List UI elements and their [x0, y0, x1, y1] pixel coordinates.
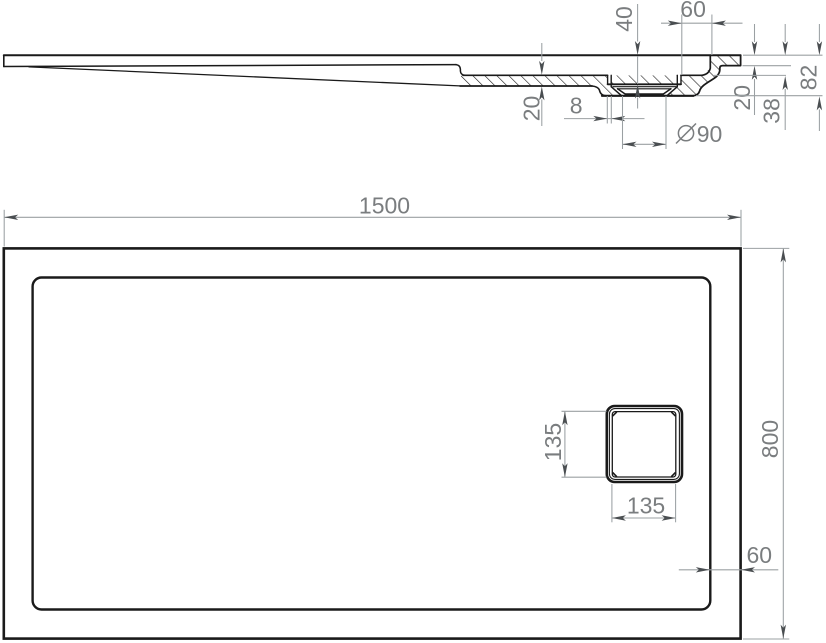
svg-text:38: 38 — [759, 98, 785, 124]
svg-text:800: 800 — [757, 420, 783, 458]
svg-text:90: 90 — [697, 121, 723, 147]
svg-text:82: 82 — [796, 65, 822, 91]
svg-text:135: 135 — [540, 423, 566, 461]
svg-text:40: 40 — [611, 6, 637, 32]
svg-text:20: 20 — [729, 85, 755, 111]
svg-text:60: 60 — [747, 542, 773, 568]
svg-text:8: 8 — [570, 93, 583, 119]
svg-text:20: 20 — [519, 96, 545, 122]
svg-text:60: 60 — [680, 0, 706, 22]
svg-text:1500: 1500 — [359, 193, 410, 219]
svg-text:135: 135 — [627, 493, 665, 519]
